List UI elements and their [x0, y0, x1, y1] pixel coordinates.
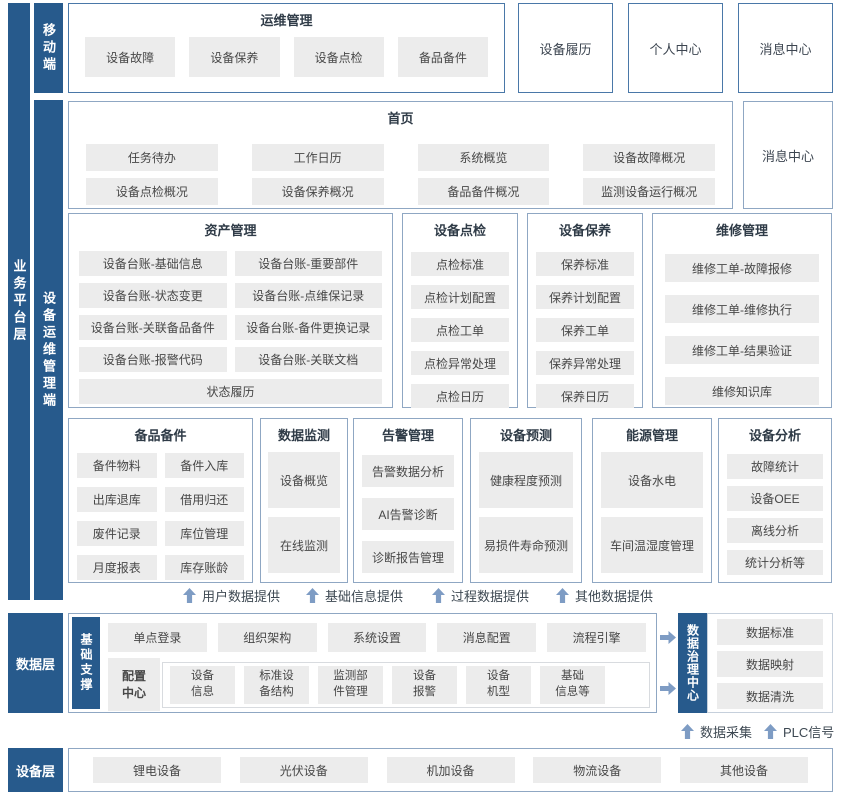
base-support-top-items: 单点登录 组织架构 系统设置 消息配置 流程引擎	[108, 623, 646, 652]
module-chip: 借用归还	[165, 487, 245, 512]
flow-label-user-data: 用户数据提供	[183, 586, 280, 605]
layer-label-text: 业务平台层	[13, 259, 26, 344]
module-chip: 单点登录	[108, 623, 207, 652]
module-chip: 点检计划配置	[411, 285, 509, 309]
flow-label-data-collection: 数据采集	[681, 722, 752, 741]
module-chip: 故障统计	[727, 454, 823, 479]
section-device-maintenance: 设备保养 保养标准 保养计划配置 保养工单 保养异常处理 保养日历	[527, 213, 643, 408]
module-chip: 设备 机型	[466, 666, 531, 704]
inspection-items: 点检标准 点检计划配置 点检工单 点检异常处理 点检日历	[411, 252, 509, 408]
module-chip: 备件入库	[165, 453, 245, 478]
module-chip: 保养标准	[536, 252, 634, 276]
module-chip: 设备台账-重要部件	[235, 251, 383, 276]
section-title: 资产管理	[69, 220, 392, 239]
module-chip: 光伏设备	[240, 757, 368, 783]
analysis-items: 故障统计 设备OEE 离线分析 统计分析等	[727, 454, 823, 575]
module-chip: 工作日历	[252, 144, 384, 171]
right-arrow-icon	[660, 631, 676, 644]
section-title: 备品备件	[69, 425, 252, 444]
module-chip: 易损件寿命预测	[479, 517, 573, 573]
layer-label-data-governance: 数据治理中心	[678, 613, 707, 713]
section-device-prediction: 设备预测 健康程度预测 易损件寿命预测	[470, 418, 582, 583]
module-chip: 维修知识库	[665, 377, 819, 405]
layer-label-base-support: 基础支撑	[72, 617, 100, 709]
module-chip: 基础 信息等	[540, 666, 605, 704]
module-chip: 维修工单-结果验证	[665, 336, 819, 364]
repair-items: 维修工单-故障报修 维修工单-维修执行 维修工单-结果验证 维修知识库	[665, 254, 819, 405]
module-chip: 统计分析等	[727, 550, 823, 575]
module-chip: 监测部 件管理	[318, 666, 383, 704]
module-chip: 状态履历	[79, 379, 382, 404]
module-chip: 设备 信息	[170, 666, 235, 704]
module-chip: 保养计划配置	[536, 285, 634, 309]
module-chip: 设备故障	[85, 37, 175, 77]
ops-items-row: 设备故障 设备保养 设备点检 备品备件	[85, 37, 488, 77]
layer-label-data: 数据层	[8, 613, 63, 713]
maintenance-items: 保养标准 保养计划配置 保养工单 保养异常处理 保养日历	[536, 252, 634, 408]
config-center-row: 配置 中心 设备 信息 标准设 备结构 监测部 件管理 设备 报警 设备 机型 …	[108, 658, 650, 711]
module-chip: 设备保养概况	[252, 178, 384, 205]
module-chip: 保养日历	[536, 384, 634, 408]
section-title: 设备分析	[719, 425, 831, 444]
module-chip: 设备故障概况	[583, 144, 715, 171]
module-chip: 点检标准	[411, 252, 509, 276]
up-arrow-icon	[183, 588, 196, 603]
module-chip: 设备台账-报警代码	[79, 347, 227, 372]
flow-label-other-data: 其他数据提供	[556, 586, 653, 605]
module-chip: 库存账龄	[165, 555, 245, 580]
module-chip: 点检日历	[411, 384, 509, 408]
section-title: 数据监测	[261, 425, 347, 444]
section-repair-management: 维修管理 维修工单-故障报修 维修工单-维修执行 维修工单-结果验证 维修知识库	[652, 213, 832, 408]
module-chip: 系统概览	[418, 144, 550, 171]
flow-label-text: 过程数据提供	[451, 586, 529, 605]
module-chip: 设备点检概况	[86, 178, 218, 205]
module-chip: 消息配置	[437, 623, 536, 652]
module-chip: 设备台账-关联备品备件	[79, 315, 227, 340]
up-arrow-icon	[681, 724, 694, 739]
module-chip: 设备台账-点维保记录	[235, 283, 383, 308]
module-chip: 告警数据分析	[362, 455, 454, 487]
section-title: 告警管理	[354, 425, 462, 444]
up-arrow-icon	[556, 588, 569, 603]
section-base-support: 基础支撑 单点登录 组织架构 系统设置 消息配置 流程引擎 配置 中心 设备 信…	[68, 613, 657, 713]
energy-items: 设备水电 车间温湿度管理	[601, 452, 703, 573]
config-center-chip: 配置 中心	[108, 658, 160, 711]
module-chip: 保养工单	[536, 318, 634, 342]
right-arrow-icon	[660, 682, 676, 695]
module-chip: 锂电设备	[93, 757, 221, 783]
governance-items-box: 数据标准 数据映射 数据清洗	[707, 613, 833, 713]
section-home: 首页 任务待办 工作日历 系统概览 设备故障概况 设备点检概况 设备保养概况 备…	[68, 101, 733, 209]
module-chip: 保养异常处理	[536, 351, 634, 375]
module-chip: 数据映射	[717, 651, 823, 677]
up-arrow-icon	[306, 588, 319, 603]
home-items-grid: 任务待办 工作日历 系统概览 设备故障概况 设备点检概况 设备保养概况 备品备件…	[86, 144, 715, 205]
section-title: 设备点检	[403, 220, 517, 239]
section-ops-management: 运维管理 设备故障 设备保养 设备点检 备品备件	[68, 3, 505, 93]
section-title: 设备预测	[471, 425, 581, 444]
module-chip: 设备台账-状态变更	[79, 283, 227, 308]
layer-label-text: 移动端	[42, 23, 55, 74]
flow-label-text: 其他数据提供	[575, 586, 653, 605]
spare-items-grid: 备件物料 备件入库 出库退库 借用归还 废件记录 库位管理 月度报表 库存账龄	[77, 453, 244, 580]
up-arrow-icon	[432, 588, 445, 603]
module-chip: 车间温湿度管理	[601, 517, 703, 573]
flow-label-process-data: 过程数据提供	[432, 586, 529, 605]
module-chip: 系统设置	[328, 623, 427, 652]
flow-label-text: 用户数据提供	[202, 586, 280, 605]
section-device-layer: 锂电设备 光伏设备 机加设备 物流设备 其他设备	[68, 748, 833, 792]
flow-label-base-info: 基础信息提供	[306, 586, 403, 605]
module-chip: 点检异常处理	[411, 351, 509, 375]
box-message-center-2: 消息中心	[743, 101, 833, 209]
module-chip: 监测设备运行概况	[583, 178, 715, 205]
module-chip: 设备概览	[268, 452, 340, 508]
layer-label-text: 设备运维管理端	[42, 291, 55, 410]
layer-label-mobile: 移动端	[34, 3, 63, 93]
section-title: 首页	[69, 108, 732, 127]
section-title: 运维管理	[69, 10, 504, 29]
module-chip: 备品备件概况	[418, 178, 550, 205]
module-chip: 废件记录	[77, 521, 157, 546]
flow-label-text: 基础信息提供	[325, 586, 403, 605]
alarm-items: 告警数据分析 AI告警诊断 诊断报告管理	[362, 455, 454, 573]
module-chip: 设备保养	[189, 37, 279, 77]
asset-items-grid: 设备台账-基础信息 设备台账-重要部件 设备台账-状态变更 设备台账-点维保记录…	[79, 251, 382, 404]
prediction-items: 健康程度预测 易损件寿命预测	[479, 452, 573, 573]
module-chip: 设备台账-基础信息	[79, 251, 227, 276]
section-title: 能源管理	[593, 425, 711, 444]
module-chip: 出库退库	[77, 487, 157, 512]
module-chip: 在线监测	[268, 517, 340, 573]
flow-label-text: 数据采集	[700, 722, 752, 741]
module-chip: 设备水电	[601, 452, 703, 508]
section-spare-parts: 备品备件 备件物料 备件入库 出库退库 借用归还 废件记录 库位管理 月度报表 …	[68, 418, 253, 583]
monitoring-items: 设备概览 在线监测	[268, 452, 340, 573]
module-chip: 任务待办	[86, 144, 218, 171]
module-chip: 健康程度预测	[479, 452, 573, 508]
module-chip: 设备台账-备件更换记录	[235, 315, 383, 340]
module-chip: 离线分析	[727, 518, 823, 543]
module-chip: AI告警诊断	[362, 498, 454, 530]
box-device-history: 设备履历	[518, 3, 613, 93]
section-alarm-management: 告警管理 告警数据分析 AI告警诊断 诊断报告管理	[353, 418, 463, 583]
module-chip: 设备OEE	[727, 486, 823, 511]
module-chip: 组织架构	[218, 623, 317, 652]
section-device-analysis: 设备分析 故障统计 设备OEE 离线分析 统计分析等	[718, 418, 832, 583]
section-asset-management: 资产管理 设备台账-基础信息 设备台账-重要部件 设备台账-状态变更 设备台账-…	[68, 213, 393, 408]
section-energy-management: 能源管理 设备水电 车间温湿度管理	[592, 418, 712, 583]
system-architecture-diagram: 业务平台层 移动端 设备运维管理端 运维管理 设备故障 设备保养 设备点检 备品…	[0, 0, 841, 794]
module-chip: 月度报表	[77, 555, 157, 580]
box-personal-center: 个人中心	[628, 3, 723, 93]
module-chip: 机加设备	[387, 757, 515, 783]
module-chip: 标准设 备结构	[244, 666, 309, 704]
module-chip: 其他设备	[680, 757, 808, 783]
flow-label-plc-signal: PLC信号	[764, 722, 834, 741]
config-items-strip: 设备 信息 标准设 备结构 监测部 件管理 设备 报警 设备 机型 基础 信息等	[162, 662, 650, 708]
module-chip: 设备 报警	[392, 666, 457, 704]
module-chip: 点检工单	[411, 318, 509, 342]
box-message-center: 消息中心	[738, 3, 833, 93]
section-device-inspection: 设备点检 点检标准 点检计划配置 点检工单 点检异常处理 点检日历	[402, 213, 518, 408]
module-chip: 流程引擎	[547, 623, 646, 652]
up-arrow-icon	[764, 724, 777, 739]
module-chip: 库位管理	[165, 521, 245, 546]
module-chip: 物流设备	[533, 757, 661, 783]
layer-label-text: 基础支撑	[80, 633, 92, 693]
module-chip: 维修工单-故障报修	[665, 254, 819, 282]
layer-label-business-platform: 业务平台层	[8, 3, 30, 600]
module-chip: 数据标准	[717, 619, 823, 645]
section-data-monitoring: 数据监测 设备概览 在线监测	[260, 418, 348, 583]
module-chip: 设备点检	[294, 37, 384, 77]
module-chip: 维修工单-维修执行	[665, 295, 819, 323]
module-chip: 数据清洗	[717, 683, 823, 709]
section-title: 维修管理	[653, 220, 831, 239]
layer-label-device-ops: 设备运维管理端	[34, 100, 63, 600]
module-chip: 备件物料	[77, 453, 157, 478]
section-title: 设备保养	[528, 220, 642, 239]
module-chip: 设备台账-关联文档	[235, 347, 383, 372]
module-chip: 备品备件	[398, 37, 488, 77]
flow-label-text: PLC信号	[783, 722, 834, 741]
layer-label-device: 设备层	[8, 748, 63, 792]
layer-label-text: 数据治理中心	[687, 624, 699, 702]
module-chip: 诊断报告管理	[362, 541, 454, 573]
